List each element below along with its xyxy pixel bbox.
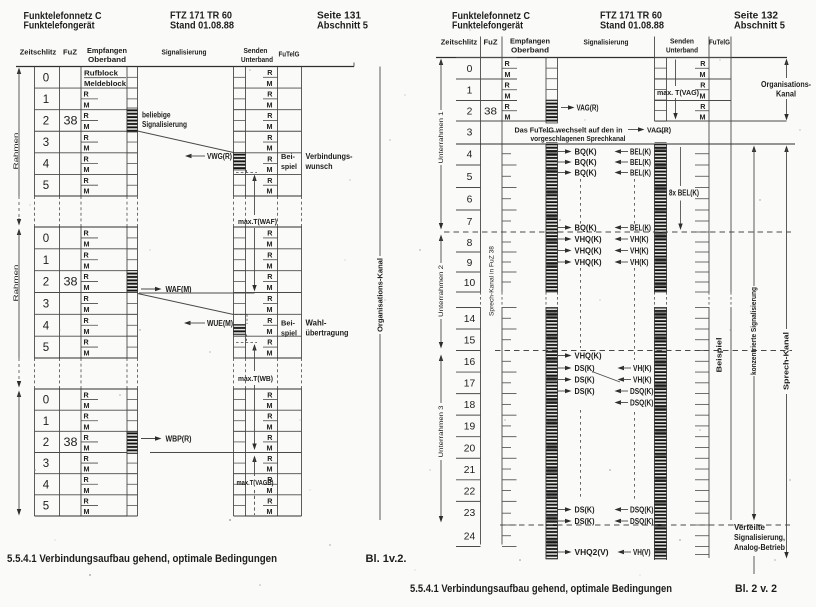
svg-text:Rahmen: Rahmen xyxy=(13,132,20,169)
svg-text:M: M xyxy=(267,187,273,196)
svg-text:VH(K): VH(K) xyxy=(630,247,649,256)
svg-text:M: M xyxy=(505,112,511,121)
svg-text:Zeitschlitz: Zeitschlitz xyxy=(441,38,478,47)
svg-text:VH(K): VH(K) xyxy=(630,235,649,244)
svg-text:VHQ(K): VHQ(K) xyxy=(575,258,602,267)
svg-text:18: 18 xyxy=(464,400,476,411)
svg-text:M: M xyxy=(84,283,90,292)
svg-text:M: M xyxy=(267,261,273,270)
svg-text:4: 4 xyxy=(43,320,50,332)
svg-text:R: R xyxy=(505,102,511,111)
svg-text:Analog-Betrieb: Analog-Betrieb xyxy=(734,543,785,552)
svg-text:DSQ(K): DSQ(K) xyxy=(630,506,654,515)
svg-text:BQ(K): BQ(K) xyxy=(575,158,597,167)
svg-text:R: R xyxy=(505,59,511,68)
svg-text:8x BEL(K): 8x BEL(K) xyxy=(669,189,699,198)
svg-text:übertragung: übertragung xyxy=(306,329,349,338)
svg-text:M: M xyxy=(84,507,90,516)
svg-text:BQ(K): BQ(K) xyxy=(575,224,597,233)
svg-text:Signalisierung: Signalisierung xyxy=(142,120,187,129)
svg-text:R: R xyxy=(267,272,273,281)
svg-text:R: R xyxy=(84,475,90,484)
svg-text:R: R xyxy=(84,412,90,421)
svg-text:VHQ(K): VHQ(K) xyxy=(575,235,602,244)
svg-text:M: M xyxy=(267,239,273,248)
svg-text:M: M xyxy=(84,443,90,452)
svg-text:M: M xyxy=(84,349,90,358)
svg-text:5: 5 xyxy=(43,500,49,512)
svg-text:24: 24 xyxy=(464,532,476,543)
svg-text:Funktelefongerät: Funktelefongerät xyxy=(452,21,524,32)
svg-text:FuZ: FuZ xyxy=(63,48,77,57)
svg-text:R: R xyxy=(267,316,273,325)
svg-text:M: M xyxy=(84,122,90,131)
svg-text:Abschnitt 5: Abschnitt 5 xyxy=(317,21,368,32)
svg-text:R: R xyxy=(84,338,90,347)
svg-text:VHQ(K): VHQ(K) xyxy=(575,247,602,256)
svg-text:R: R xyxy=(267,133,273,142)
svg-text:Zeitschlitz: Zeitschlitz xyxy=(20,48,57,57)
svg-text:Organisations-: Organisations- xyxy=(761,80,811,89)
svg-text:M: M xyxy=(267,305,273,314)
svg-text:DS(K): DS(K) xyxy=(575,364,595,373)
svg-text:M: M xyxy=(84,327,90,336)
svg-text:Signalisierung: Signalisierung xyxy=(584,38,629,47)
svg-text:R: R xyxy=(84,294,90,303)
svg-text:7: 7 xyxy=(467,217,473,228)
svg-text:Unterrahmen 2: Unterrahmen 2 xyxy=(438,265,445,317)
svg-text:2: 2 xyxy=(467,107,473,118)
svg-text:R: R xyxy=(700,102,706,111)
svg-text:Bei-: Bei- xyxy=(281,152,295,161)
svg-text:20: 20 xyxy=(464,443,476,454)
svg-text:14: 14 xyxy=(464,314,476,325)
svg-text:R: R xyxy=(84,154,90,163)
svg-text:BEL(K): BEL(K) xyxy=(630,224,651,233)
svg-text:Sprech-Kanal: Sprech-Kanal xyxy=(782,332,791,390)
svg-text:17: 17 xyxy=(464,379,476,390)
svg-text:M: M xyxy=(700,70,706,79)
svg-text:M: M xyxy=(267,401,273,410)
svg-text:5.5.4.1 Verbindungsaufbau gehe: 5.5.4.1 Verbindungsaufbau gehend, optima… xyxy=(7,553,277,565)
svg-text:M: M xyxy=(84,187,90,196)
svg-text:8: 8 xyxy=(467,238,473,249)
svg-text:R: R xyxy=(267,111,273,120)
svg-text:M: M xyxy=(505,91,511,100)
svg-text:VHQ(K): VHQ(K) xyxy=(575,352,602,361)
svg-text:R: R xyxy=(267,250,273,259)
svg-text:Rufblock: Rufblock xyxy=(84,69,118,78)
svg-text:19: 19 xyxy=(464,422,476,433)
svg-text:R: R xyxy=(267,154,273,163)
svg-text:Funktelefongerät: Funktelefongerät xyxy=(24,21,96,32)
svg-text:BQ(K): BQ(K) xyxy=(575,169,597,178)
svg-text:0: 0 xyxy=(467,64,473,75)
svg-text:Sprech-Kanal in FuZ 38: Sprech-Kanal in FuZ 38 xyxy=(488,246,495,316)
svg-text:max.T(WB): max.T(WB) xyxy=(238,374,273,383)
svg-text:max.T(VAGB): max.T(VAGB) xyxy=(237,478,274,487)
svg-text:R: R xyxy=(267,294,273,303)
svg-text:WUE(M): WUE(M) xyxy=(207,319,233,328)
svg-text:Bl. 2 v. 2: Bl. 2 v. 2 xyxy=(735,583,777,595)
svg-text:R: R xyxy=(267,176,273,185)
svg-text:VHQ2(V): VHQ2(V) xyxy=(575,548,609,557)
svg-text:Abschnitt 5: Abschnitt 5 xyxy=(734,21,785,32)
svg-text:BEL(K): BEL(K) xyxy=(630,158,651,167)
svg-text:M: M xyxy=(84,144,90,153)
svg-text:BEL(K): BEL(K) xyxy=(630,148,651,157)
svg-text:Empfangen: Empfangen xyxy=(87,46,127,55)
svg-text:R: R xyxy=(84,229,90,238)
svg-text:M: M xyxy=(700,91,706,100)
svg-text:3: 3 xyxy=(43,137,49,149)
svg-text:Unterrahmen 1: Unterrahmen 1 xyxy=(438,111,445,163)
svg-text:Senden: Senden xyxy=(670,37,694,46)
svg-text:M: M xyxy=(267,165,273,174)
svg-text:10: 10 xyxy=(464,278,476,289)
svg-text:0: 0 xyxy=(43,395,49,407)
svg-text:R: R xyxy=(267,229,273,238)
svg-text:M: M xyxy=(84,100,90,109)
svg-text:FuTelG: FuTelG xyxy=(279,50,300,59)
svg-text:M: M xyxy=(267,486,273,495)
svg-text:R: R xyxy=(84,433,90,442)
svg-text:38: 38 xyxy=(64,277,78,289)
svg-text:M: M xyxy=(505,70,511,79)
svg-text:Senden: Senden xyxy=(244,46,268,55)
svg-text:1: 1 xyxy=(43,416,49,428)
svg-text:R: R xyxy=(84,316,90,325)
svg-text:R: R xyxy=(267,391,273,400)
svg-text:22: 22 xyxy=(464,486,476,497)
svg-text:38: 38 xyxy=(64,115,78,127)
svg-text:38: 38 xyxy=(484,107,497,118)
svg-text:9: 9 xyxy=(467,258,473,269)
svg-text:R: R xyxy=(267,496,273,505)
svg-text:max. T(VAG): max. T(VAG) xyxy=(657,88,699,97)
svg-text:Unterband: Unterband xyxy=(666,46,698,55)
svg-text:Beispiel: Beispiel xyxy=(715,338,724,373)
svg-text:R: R xyxy=(84,250,90,259)
svg-text:DS(K): DS(K) xyxy=(575,376,595,385)
svg-text:5: 5 xyxy=(43,180,49,192)
svg-text:Bl. 1v.2.: Bl. 1v.2. xyxy=(366,553,407,565)
svg-text:M: M xyxy=(84,465,90,474)
svg-text:Kanal: Kanal xyxy=(776,90,796,99)
svg-text:beliebige: beliebige xyxy=(142,111,171,120)
svg-text:FuZ: FuZ xyxy=(484,38,498,47)
svg-text:WBP(R): WBP(R) xyxy=(166,435,192,444)
svg-text:4: 4 xyxy=(43,159,50,171)
svg-text:M: M xyxy=(700,112,706,121)
svg-text:R: R xyxy=(267,338,273,347)
svg-text:Signalisierung,: Signalisierung, xyxy=(734,533,785,542)
svg-text:VH(V): VH(V) xyxy=(633,548,651,557)
svg-text:wunsch: wunsch xyxy=(305,162,333,171)
svg-text:VAG(R): VAG(R) xyxy=(647,126,671,135)
svg-text:15: 15 xyxy=(464,336,476,347)
svg-text:M: M xyxy=(267,443,273,452)
svg-text:DSQ(K): DSQ(K) xyxy=(630,517,654,526)
svg-text:VH(K): VH(K) xyxy=(633,376,652,385)
svg-text:Stand 01.08.88: Stand 01.08.88 xyxy=(600,21,664,32)
svg-text:M: M xyxy=(84,486,90,495)
svg-text:M: M xyxy=(267,327,273,336)
svg-text:Stand 01.08.88: Stand 01.08.88 xyxy=(170,21,234,32)
svg-text:Organisations-Kanal: Organisations-Kanal xyxy=(376,258,385,332)
svg-text:R: R xyxy=(84,391,90,400)
svg-text:3: 3 xyxy=(43,458,49,470)
svg-text:M: M xyxy=(267,122,273,131)
svg-text:1: 1 xyxy=(43,94,49,106)
svg-text:R: R xyxy=(84,133,90,142)
svg-text:M: M xyxy=(267,507,273,516)
svg-text:VH(K): VH(K) xyxy=(633,364,652,373)
svg-text:2: 2 xyxy=(43,277,49,289)
svg-text:21: 21 xyxy=(464,465,476,476)
svg-text:R: R xyxy=(505,81,511,90)
svg-text:DSQ(K): DSQ(K) xyxy=(630,399,654,408)
svg-text:Unterrahmen 3: Unterrahmen 3 xyxy=(438,405,445,457)
svg-text:R: R xyxy=(84,272,90,281)
svg-text:Unterband: Unterband xyxy=(241,55,273,64)
svg-text:5: 5 xyxy=(43,342,49,354)
svg-text:Empfangen: Empfangen xyxy=(510,37,550,46)
svg-text:DS(K): DS(K) xyxy=(575,506,595,515)
svg-text:M: M xyxy=(84,261,90,270)
svg-text:R: R xyxy=(84,111,90,120)
svg-text:VAG(R): VAG(R) xyxy=(577,104,599,113)
svg-text:0: 0 xyxy=(43,72,49,84)
svg-text:BEL(K): BEL(K) xyxy=(630,169,651,178)
svg-text:2: 2 xyxy=(43,437,49,449)
svg-text:4: 4 xyxy=(43,479,50,491)
svg-text:Wahl-: Wahl- xyxy=(306,319,327,328)
svg-text:M: M xyxy=(84,239,90,248)
svg-text:Meldeblock: Meldeblock xyxy=(84,79,126,88)
svg-text:DS(K): DS(K) xyxy=(575,517,595,526)
svg-text:23: 23 xyxy=(464,508,476,519)
svg-text:R: R xyxy=(267,454,273,463)
svg-text:VWG(R): VWG(R) xyxy=(207,152,232,161)
svg-text:vorgeschlagenen Sprechkanal: vorgeschlagenen Sprechkanal xyxy=(531,134,626,143)
svg-text:BQ(K): BQ(K) xyxy=(575,148,597,157)
svg-text:R: R xyxy=(267,68,273,77)
svg-text:R: R xyxy=(84,176,90,185)
svg-text:0: 0 xyxy=(43,233,49,245)
svg-text:R: R xyxy=(84,454,90,463)
svg-text:M: M xyxy=(84,401,90,410)
svg-text:Bei-: Bei- xyxy=(281,319,295,328)
svg-text:5: 5 xyxy=(467,172,473,183)
svg-text:max.T(WAF): max.T(WAF) xyxy=(238,217,277,226)
svg-text:spiel: spiel xyxy=(281,329,297,338)
svg-text:M: M xyxy=(267,283,273,292)
svg-text:6: 6 xyxy=(467,195,473,206)
svg-text:4: 4 xyxy=(467,150,473,161)
svg-text:Verbindungs-: Verbindungs- xyxy=(306,152,353,161)
svg-text:M: M xyxy=(84,422,90,431)
svg-text:1: 1 xyxy=(467,86,473,97)
svg-text:R: R xyxy=(84,90,90,99)
svg-text:5.5.4.1 Verbindungsaufbau gehe: 5.5.4.1 Verbindungsaufbau gehend, optima… xyxy=(410,583,672,595)
svg-text:spiel: spiel xyxy=(281,162,297,171)
svg-text:konzentrierte Signalisierung: konzentrierte Signalisierung xyxy=(751,287,758,375)
svg-text:3: 3 xyxy=(467,128,473,139)
svg-text:M: M xyxy=(84,165,90,174)
svg-text:R: R xyxy=(267,412,273,421)
svg-text:M: M xyxy=(267,79,273,88)
svg-text:R: R xyxy=(267,433,273,442)
svg-text:M: M xyxy=(84,305,90,314)
svg-text:M: M xyxy=(267,422,273,431)
svg-text:DSQ(K): DSQ(K) xyxy=(630,387,654,396)
svg-text:FuTelG: FuTelG xyxy=(709,38,730,47)
svg-text:38: 38 xyxy=(64,437,78,449)
svg-text:M: M xyxy=(267,144,273,153)
svg-text:R: R xyxy=(700,59,706,68)
svg-text:Oberband: Oberband xyxy=(511,46,549,55)
svg-text:Signalisierung: Signalisierung xyxy=(162,48,207,57)
svg-text:1: 1 xyxy=(43,255,49,267)
svg-text:M: M xyxy=(267,349,273,358)
svg-text:Verteilte: Verteilte xyxy=(734,523,766,532)
svg-text:R: R xyxy=(84,496,90,505)
svg-text:DS(K): DS(K) xyxy=(575,387,595,396)
svg-text:M: M xyxy=(267,100,273,109)
svg-text:Oberband: Oberband xyxy=(88,55,126,64)
svg-text:3: 3 xyxy=(43,298,49,310)
svg-text:R: R xyxy=(700,81,706,90)
svg-text:M: M xyxy=(267,465,273,474)
svg-text:16: 16 xyxy=(464,357,476,368)
svg-text:R: R xyxy=(267,90,273,99)
svg-text:2: 2 xyxy=(43,115,49,127)
svg-text:VH(K): VH(K) xyxy=(630,258,649,267)
svg-text:Rahmen: Rahmen xyxy=(13,264,20,301)
